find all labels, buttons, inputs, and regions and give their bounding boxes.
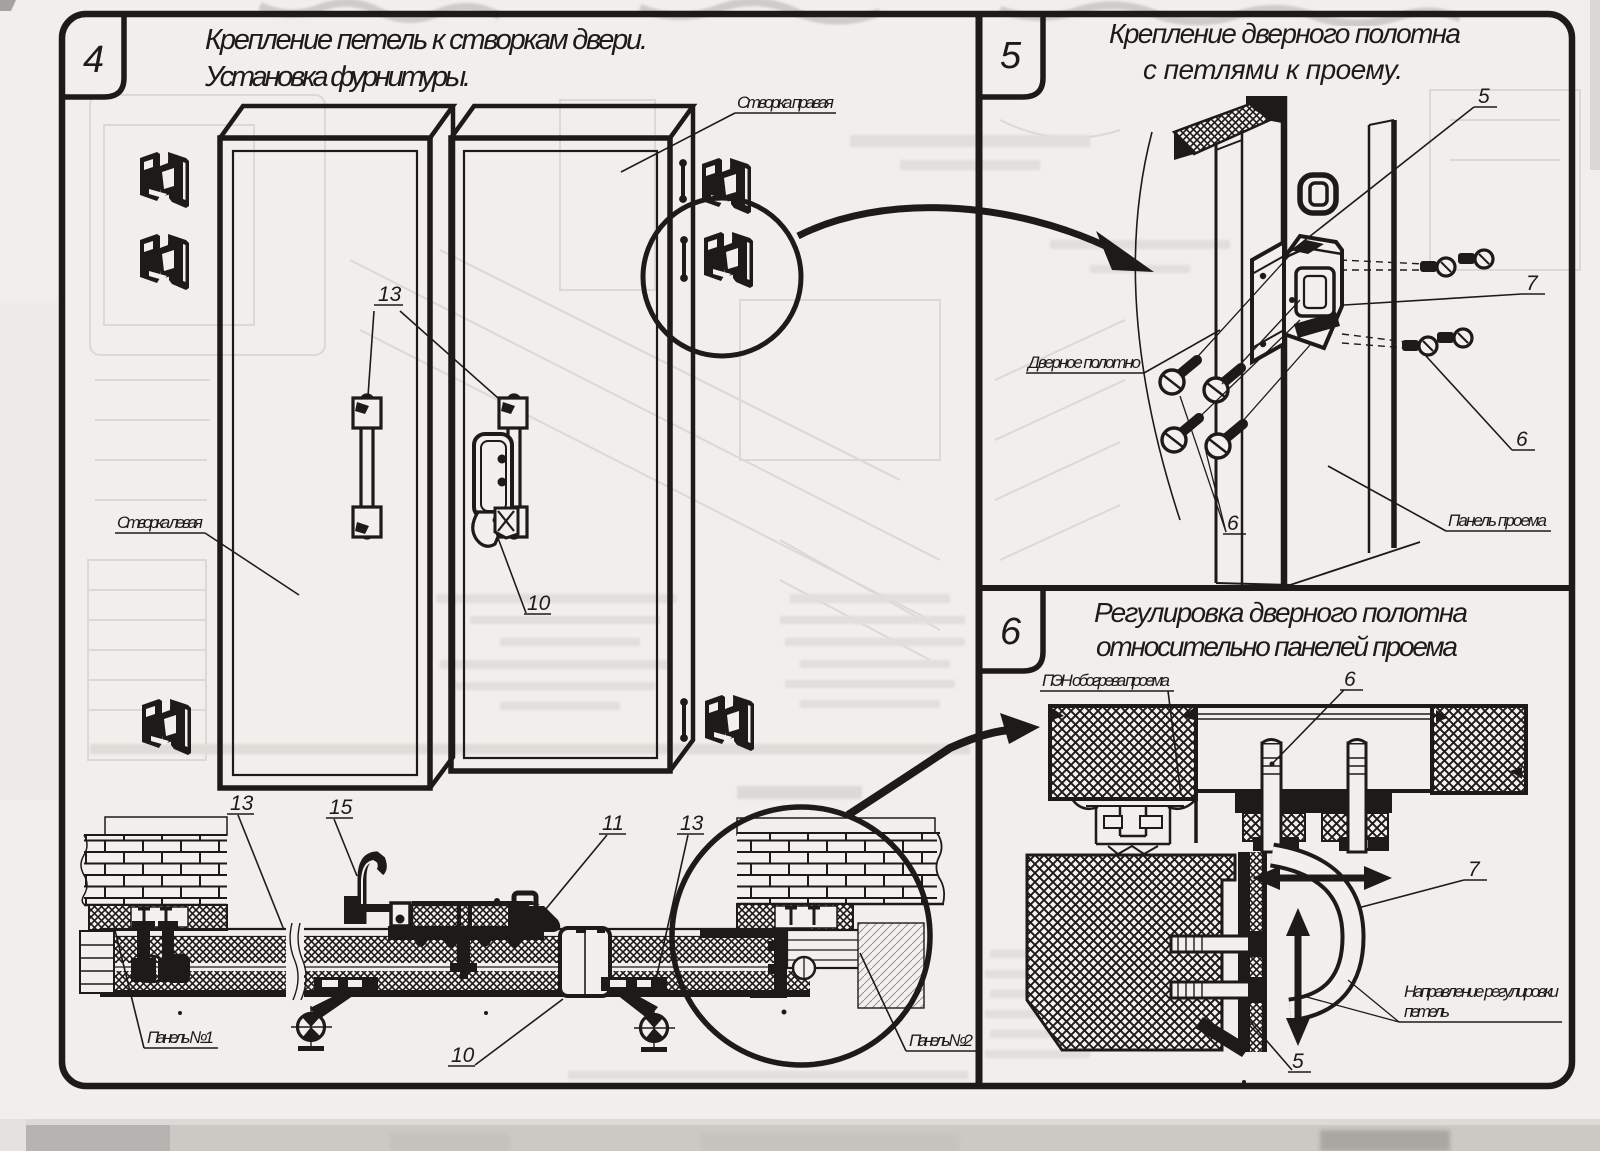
svg-text:10: 10 [527,592,551,615]
svg-text:7: 7 [1526,272,1539,295]
svg-text:Створка левая: Створка левая [117,513,203,532]
svg-text:15: 15 [329,796,353,819]
svg-text:5: 5 [1292,1050,1304,1073]
svg-text:Направление регулировки: Направление регулировки [1404,982,1560,1001]
svg-text:6: 6 [1516,428,1528,451]
svg-text:6: 6 [1227,512,1239,535]
svg-text:Панель №2: Панель №2 [909,1031,974,1050]
svg-text:Крепление дверного полотна: Крепление дверного полотна [1109,18,1461,49]
svg-text:13: 13 [230,792,254,815]
svg-text:6: 6 [1344,668,1356,691]
svg-text:13: 13 [378,283,402,306]
svg-text:Крепление петель к створкам дв: Крепление петель к створкам двери. [205,24,648,56]
svg-text:с петлями к проему.: с петлями к проему. [1143,54,1403,85]
svg-text:Установка фурнитуры.: Установка фурнитуры. [204,61,471,93]
svg-text:10: 10 [451,1044,475,1067]
svg-text:относительно панелей проема: относительно панелей проема [1096,631,1458,662]
svg-text:Регулировка дверного полотна: Регулировка дверного полотна [1094,597,1468,628]
svg-text:5: 5 [1000,35,1022,77]
svg-text:Дверное полотно: Дверное полотно [1026,353,1141,372]
svg-text:Панель проема: Панель проема [1448,511,1547,530]
svg-text:ПЭН обогрева проема: ПЭН обогрева проема [1042,671,1170,690]
svg-text:Панель №1: Панель №1 [147,1028,214,1047]
svg-text:4: 4 [83,39,104,81]
svg-text:петель: петель [1404,1002,1450,1021]
svg-text:5: 5 [1478,85,1490,108]
svg-text:11: 11 [602,812,624,835]
svg-text:13: 13 [680,812,704,835]
svg-text:Створка правая: Створка правая [737,93,834,112]
svg-text:6: 6 [1000,611,1022,653]
svg-text:7: 7 [1468,858,1481,881]
